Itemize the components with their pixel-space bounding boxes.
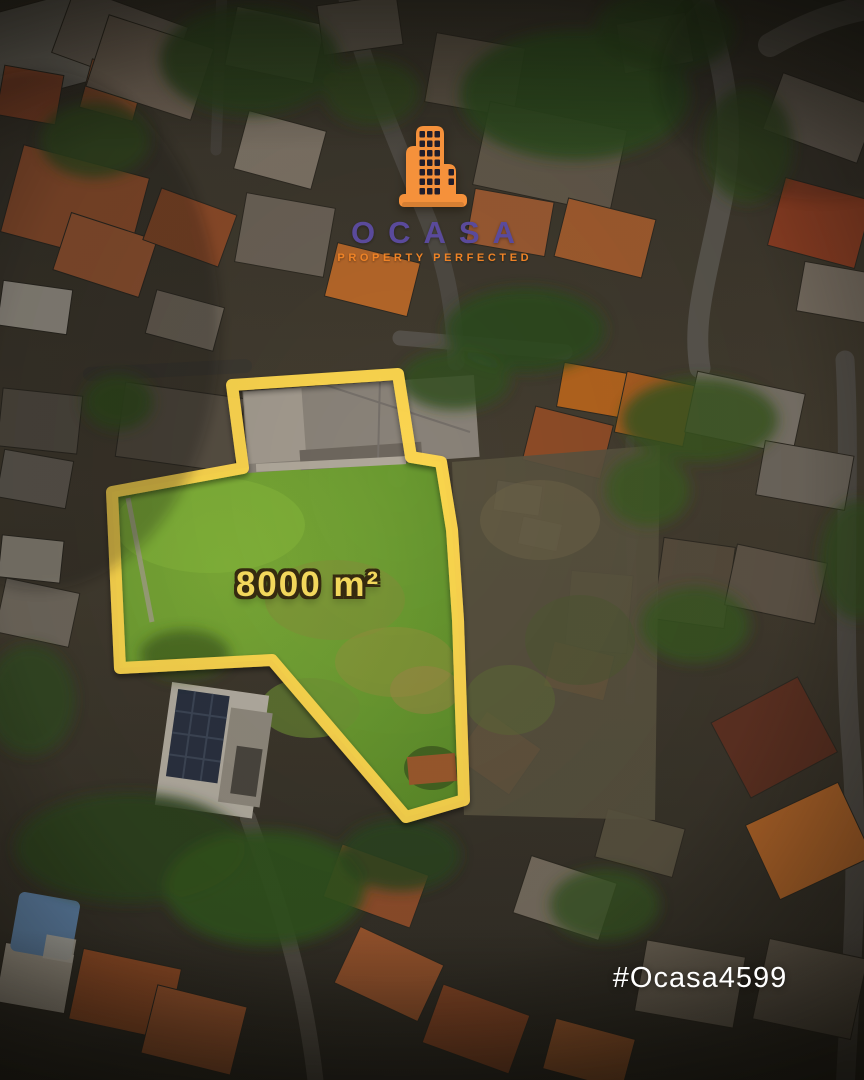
brand-tagline: PROPERTY PERFECTED [283, 253, 583, 264]
hashtag-label: #Ocasa4599 [560, 962, 840, 995]
building-icon [396, 118, 470, 210]
poster: OCASA PROPERTY PERFECTED 8000 m² #Ocasa4… [0, 0, 864, 1080]
area-label: 8000 m² [203, 567, 413, 602]
brand-logo: OCASA PROPERTY PERFECTED [283, 118, 583, 264]
brand-name: OCASA [283, 217, 583, 248]
